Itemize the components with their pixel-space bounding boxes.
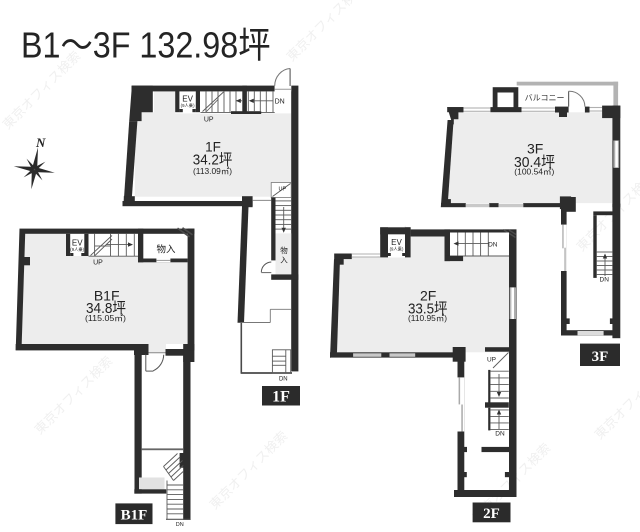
svg-text:東京オフィス検索: 東京オフィス検索 [207, 428, 291, 512]
svg-text:UP: UP [487, 357, 496, 364]
svg-text:B1～3F 132.98坪: B1～3F 132.98坪 [21, 25, 271, 66]
svg-text:UP: UP [279, 187, 287, 193]
svg-text:バルコニー: バルコニー [525, 93, 565, 102]
svg-text:UP: UP [204, 117, 214, 124]
svg-text:東京オフィス検索: 東京オフィス検索 [592, 358, 640, 442]
svg-text:(9人乗): (9人乗) [70, 246, 84, 253]
svg-text:物入: 物入 [156, 244, 176, 256]
svg-text:東京オフィス検索: 東京オフィス検索 [284, 0, 368, 64]
svg-text:入: 入 [280, 256, 288, 265]
svg-text:2F: 2F [483, 506, 500, 522]
svg-text:DN: DN [495, 431, 505, 438]
svg-text:(113.09㎡): (113.09㎡) [193, 166, 232, 176]
svg-text:B1F: B1F [121, 508, 148, 524]
svg-text:(100.54㎡): (100.54㎡) [514, 167, 554, 177]
svg-text:(110.95㎡): (110.95㎡) [408, 313, 447, 323]
svg-text:(9人乗): (9人乗) [390, 246, 404, 253]
svg-text:DN: DN [600, 277, 610, 284]
svg-text:(9人乗): (9人乗) [181, 102, 195, 109]
svg-text:DN: DN [279, 376, 288, 382]
svg-text:N: N [35, 135, 46, 150]
svg-text:DN: DN [488, 241, 498, 248]
svg-text:(115.05㎡): (115.05㎡) [85, 313, 126, 323]
svg-text:東京オフィス検索: 東京オフィス検索 [32, 353, 116, 437]
svg-text:UP: UP [93, 260, 103, 267]
svg-text:物: 物 [280, 245, 288, 255]
svg-text:DN: DN [176, 522, 184, 528]
svg-text:3F: 3F [592, 349, 609, 365]
svg-text:DN: DN [275, 98, 285, 105]
svg-text:1F: 1F [272, 389, 290, 406]
